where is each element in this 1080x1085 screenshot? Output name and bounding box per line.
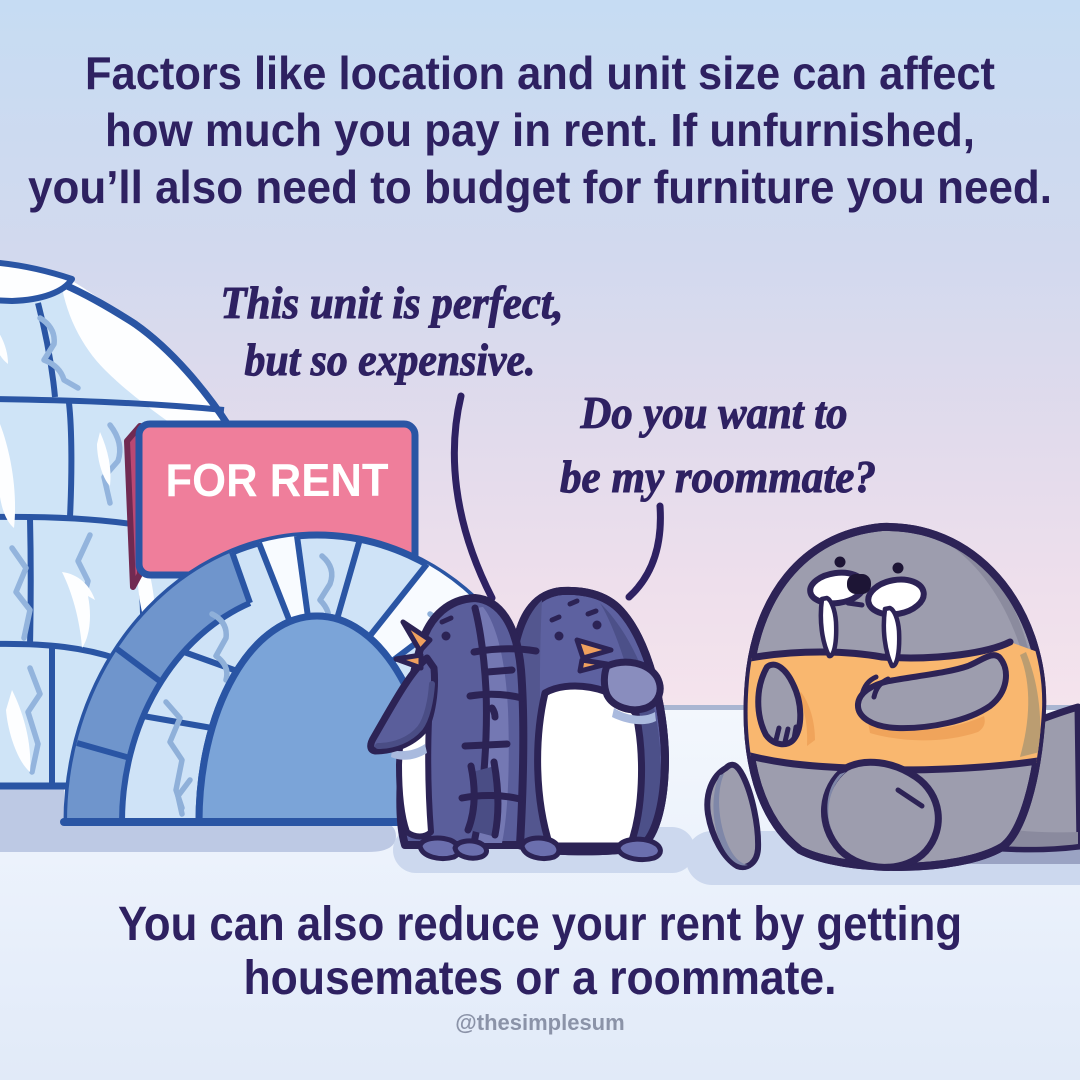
- svg-text:but so expensive.: but so expensive.: [245, 335, 536, 385]
- svg-text:be my roommate?: be my roommate?: [560, 452, 876, 502]
- svg-text:how much you pay in rent. If u: how much you pay in rent. If unfurnished…: [105, 104, 975, 156]
- svg-text:You can also reduce your rent: You can also reduce your rent by getting: [118, 898, 962, 951]
- svg-text:@thesimplesum: @thesimplesum: [455, 1010, 624, 1035]
- svg-text:you’ll also need to budget for: you’ll also need to budget for furniture…: [28, 161, 1052, 213]
- svg-text:Do you want to: Do you want to: [580, 388, 848, 438]
- svg-text:FOR RENT: FOR RENT: [166, 454, 389, 506]
- svg-text:housemates or a roommate.: housemates or a roommate.: [244, 952, 837, 1005]
- svg-text:Factors like location and unit: Factors like location and unit size can …: [85, 47, 995, 99]
- svg-text:This unit is perfect,: This unit is perfect,: [221, 278, 564, 328]
